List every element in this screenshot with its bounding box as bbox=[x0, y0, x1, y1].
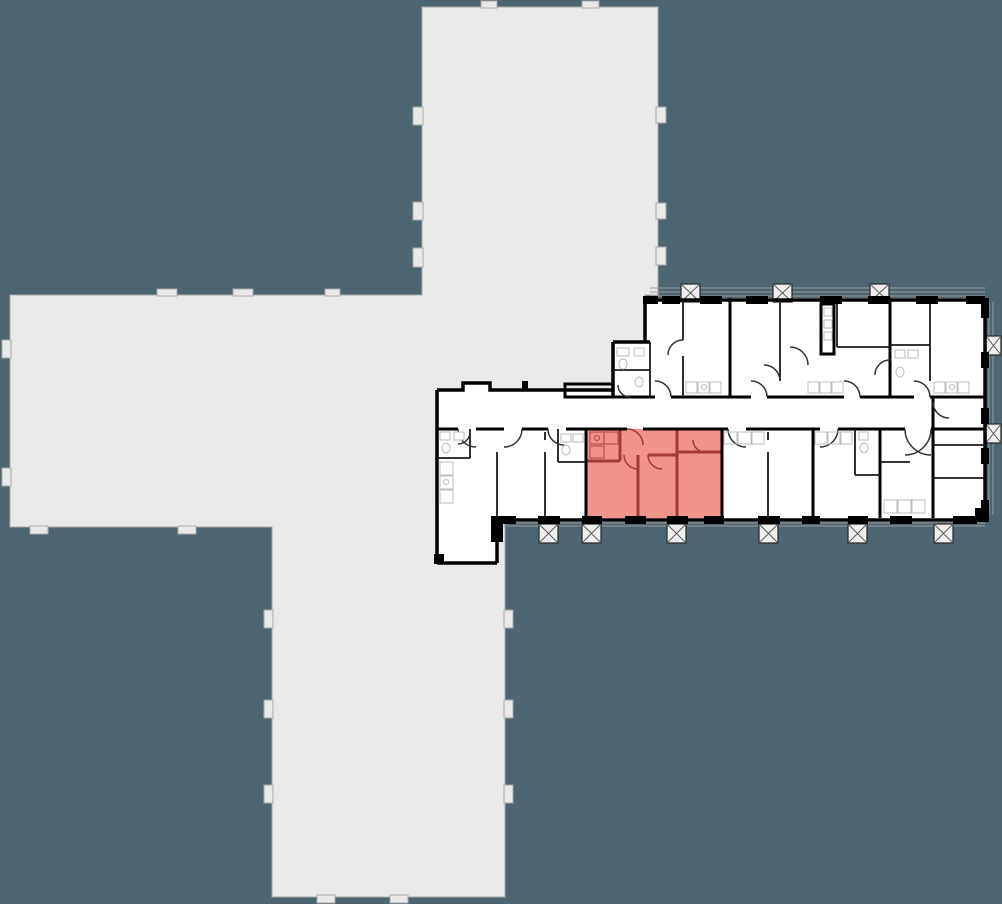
left-unit-tail-floor bbox=[437, 522, 497, 563]
highlighted-apartment[interactable] bbox=[586, 429, 722, 518]
floor-plan-canvas bbox=[0, 0, 1002, 904]
highlighted-apartment-area[interactable] bbox=[586, 429, 722, 518]
